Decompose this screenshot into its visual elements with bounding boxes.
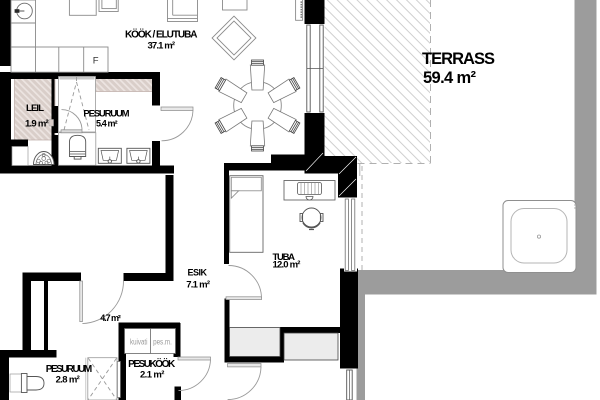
svg-text:LEIL: LEIL	[26, 103, 44, 114]
svg-text:2.8 m²: 2.8 m²	[56, 375, 80, 386]
svg-text:4.7 m²: 4.7 m²	[100, 313, 121, 323]
svg-text:59.4 m²: 59.4 m²	[423, 69, 477, 87]
svg-text:KÖÖK / ELUTUBA: KÖÖK / ELUTUBA	[125, 28, 198, 41]
svg-text:37.1 m²: 37.1 m²	[148, 41, 176, 52]
svg-text:pes.m.: pes.m.	[153, 338, 172, 347]
svg-text:12.0 m²: 12.0 m²	[273, 259, 301, 270]
svg-text:1.9 m²: 1.9 m²	[25, 118, 49, 129]
svg-text:2.1 m²: 2.1 m²	[140, 369, 164, 380]
svg-text:5.4 m²: 5.4 m²	[96, 119, 118, 129]
svg-text:PESUKÖÖK: PESUKÖÖK	[128, 357, 176, 370]
svg-text:PESURUUM: PESURUUM	[46, 364, 92, 375]
svg-text:TERRASS: TERRASS	[422, 50, 495, 68]
svg-text:7.1 m²: 7.1 m²	[186, 280, 210, 291]
svg-text:ESIK: ESIK	[188, 267, 208, 277]
svg-text:F: F	[93, 56, 99, 67]
svg-text:kuivati: kuivati	[130, 338, 148, 347]
